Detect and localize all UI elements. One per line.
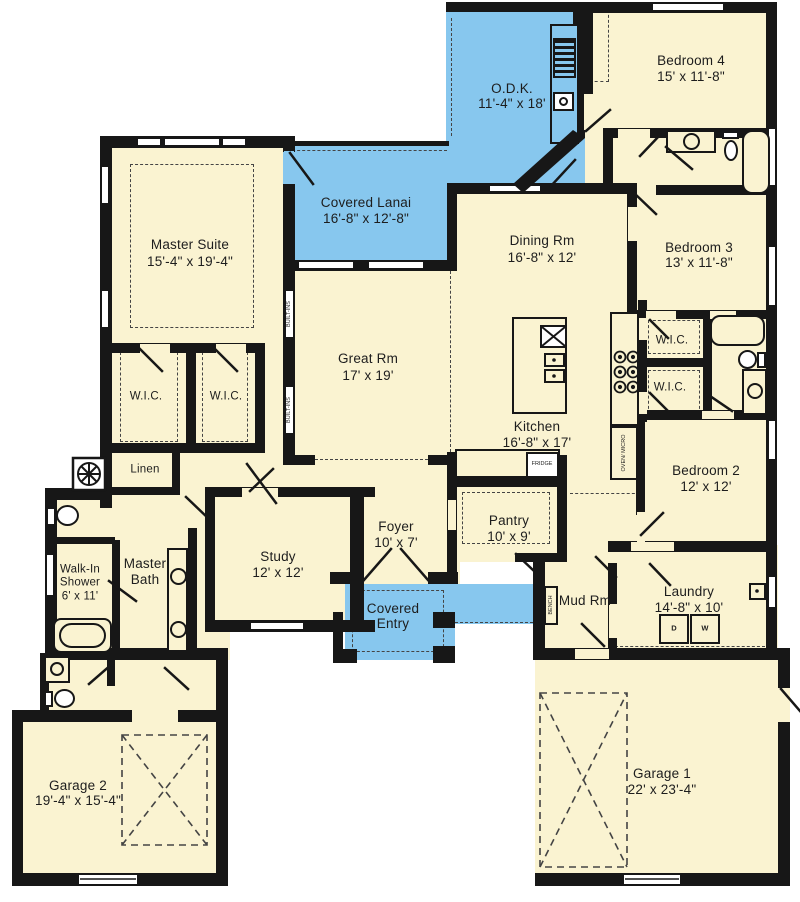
room-label-odk: O.D.K. (491, 81, 533, 97)
label-wic: W.I.C. (654, 381, 687, 394)
room-label-foyer: Foyer (378, 519, 414, 535)
island-sink-x (542, 327, 565, 346)
cooktop-burners (615, 352, 639, 393)
room-dims-master: 15'-4" x 19'-4" (147, 254, 233, 270)
room-dims-great: 17' x 19' (342, 368, 393, 384)
label-fridge: FRIDGE (532, 461, 553, 467)
label-oven-micro: OVEN/ MICRO (621, 435, 627, 472)
room-label-bedroom2: Bedroom 2 (672, 463, 740, 479)
label-wic: W.I.C. (656, 334, 689, 347)
room-dims-foyer: 10' x 7' (374, 535, 418, 551)
room-label-shower1: Walk-In (60, 563, 100, 576)
room-dims-bedroom2: 12' x 12' (680, 479, 731, 495)
room-label-mbath2: Bath (131, 572, 160, 588)
room-label-laundry: Laundry (664, 584, 714, 600)
room-label-entry1: Covered (367, 601, 419, 617)
room-dims-dining: 16'-8" x 12' (508, 250, 577, 266)
room-label-mud: Mud Rm (559, 593, 611, 609)
room-label-shower2: Shower (60, 576, 100, 589)
label-dryer: D (671, 625, 677, 634)
garage-parking-boxes (122, 693, 627, 867)
room-dims-study: 12' x 12' (252, 565, 303, 581)
room-label-kitchen: Kitchen (514, 419, 560, 435)
room-dims-bedroom4: 15' x 11'-8" (657, 69, 725, 85)
label-built-ins: BUILT-INS (286, 397, 292, 423)
door-swings (89, 110, 800, 711)
label-wic: W.I.C. (130, 390, 163, 403)
room-dims-bedroom3: 13' x 11'-8" (665, 255, 733, 271)
room-label-lanai: Covered Lanai (321, 195, 411, 211)
room-dims-garage2: 19'-4" x 15'-4" (35, 793, 121, 809)
room-label-pantry: Pantry (489, 513, 529, 529)
room-dims-kitchen: 16'-8" x 17' (503, 435, 572, 451)
room-dims-garage1: 22' x 23'-4" (628, 782, 697, 798)
room-label-dining: Dining Rm (510, 233, 575, 249)
room-label-bedroom3: Bedroom 3 (665, 240, 733, 256)
room-dims-laundry: 14'-8" x 10' (655, 600, 724, 616)
room-label-great: Great Rm (338, 351, 398, 367)
label-wic: W.I.C. (210, 390, 243, 403)
room-label-entry2: Entry (377, 616, 410, 632)
floor-plan: O.D.K. 11'-4" x 18' Bedroom 4 15' x 11'-… (0, 0, 800, 902)
label-washer: W (701, 625, 708, 634)
room-dims-odk: 11'-4" x 18' (478, 96, 546, 112)
room-dims-shower: 6' x 11' (62, 590, 98, 603)
room-label-garage1: Garage 1 (633, 766, 691, 782)
room-label-study: Study (260, 549, 296, 565)
label-built-ins: BUILT-INS (286, 301, 292, 327)
room-dims-lanai: 16'-8" x 12'-8" (323, 211, 409, 227)
hvac-fan-unit (73, 458, 105, 490)
room-label-bedroom4: Bedroom 4 (657, 53, 725, 69)
room-label-garage2: Garage 2 (49, 778, 107, 794)
label-linen: Linen (130, 463, 159, 476)
label-bench: BENCH (548, 595, 554, 614)
room-label-master: Master Suite (151, 237, 229, 253)
room-dims-pantry: 10' x 9' (487, 529, 531, 545)
room-label-mbath1: Master (124, 556, 166, 572)
